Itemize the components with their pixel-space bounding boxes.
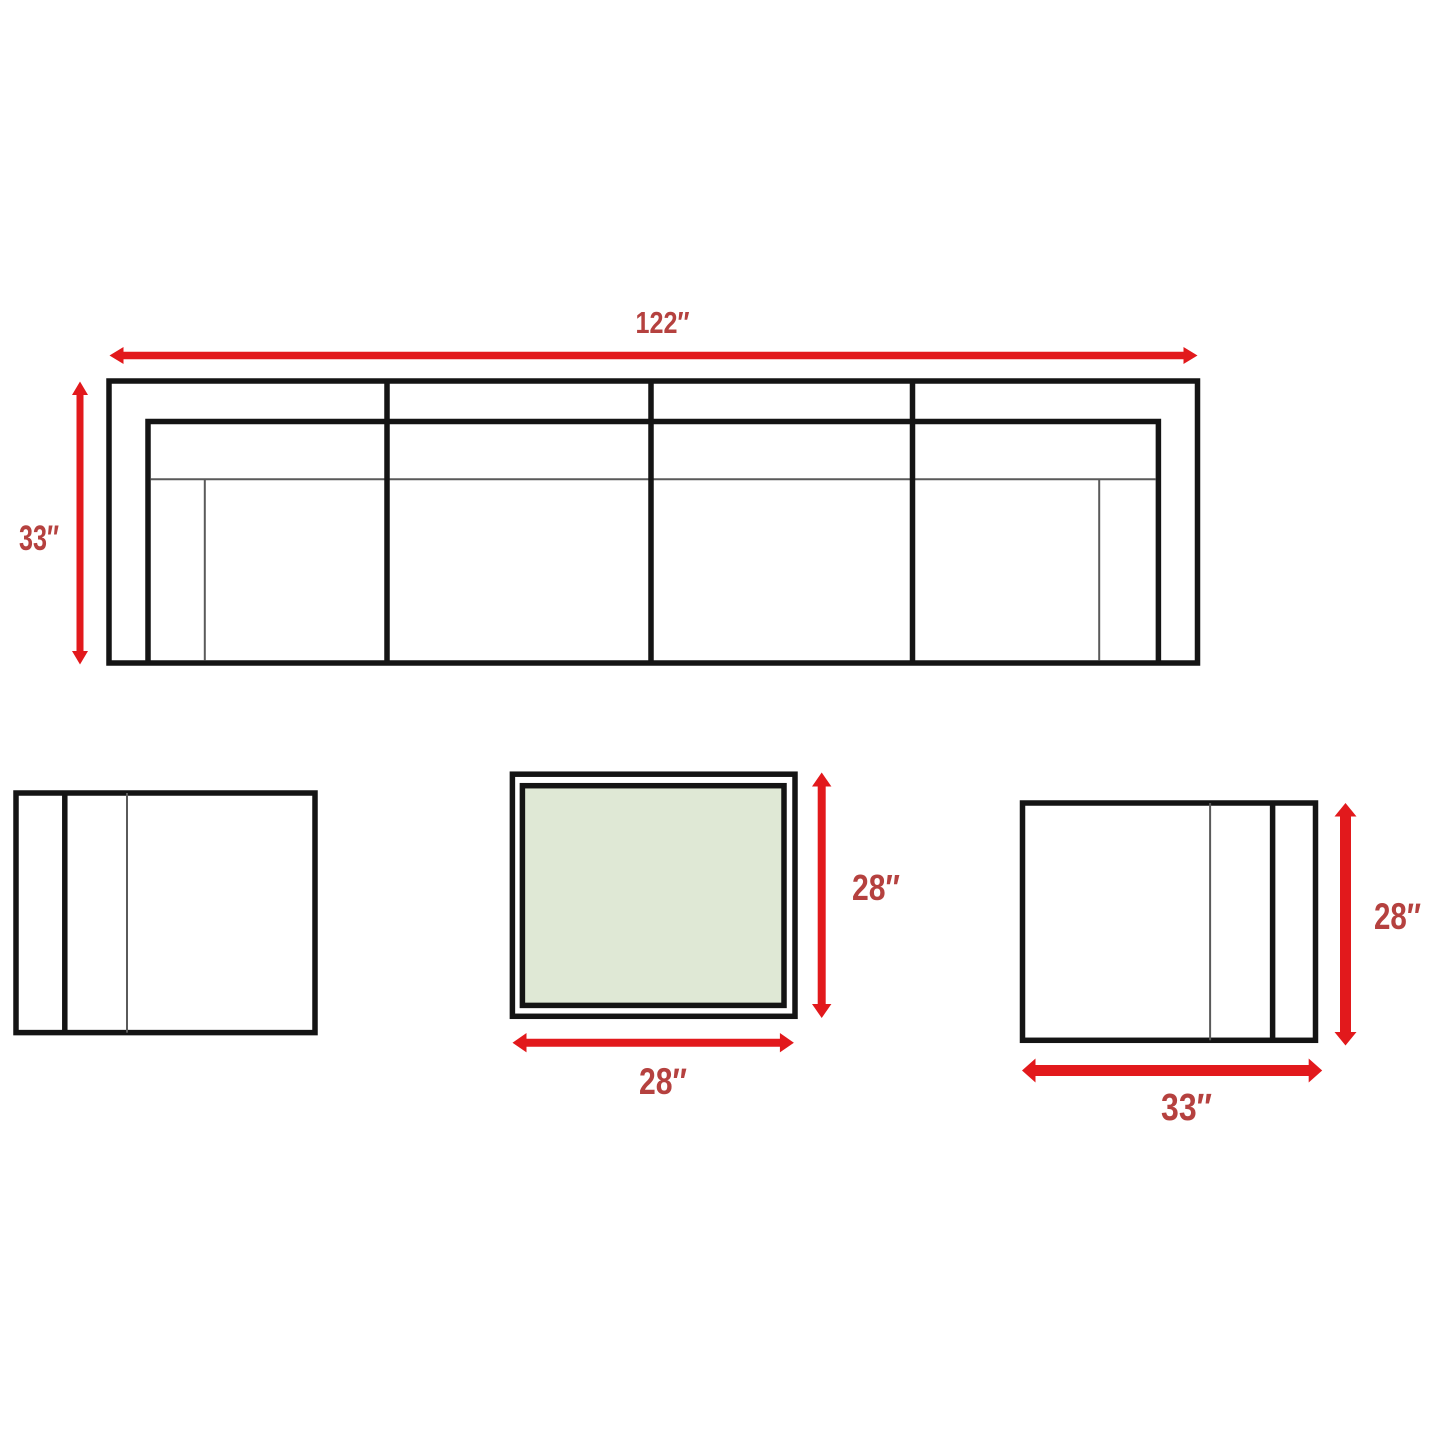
svg-text:33″: 33″ <box>1161 1087 1212 1129</box>
svg-text:28″: 28″ <box>852 867 900 908</box>
svg-text:28″: 28″ <box>639 1061 687 1102</box>
svg-text:28″: 28″ <box>1374 896 1421 937</box>
svg-text:33″: 33″ <box>19 519 59 558</box>
svg-text:122″: 122″ <box>636 305 690 340</box>
